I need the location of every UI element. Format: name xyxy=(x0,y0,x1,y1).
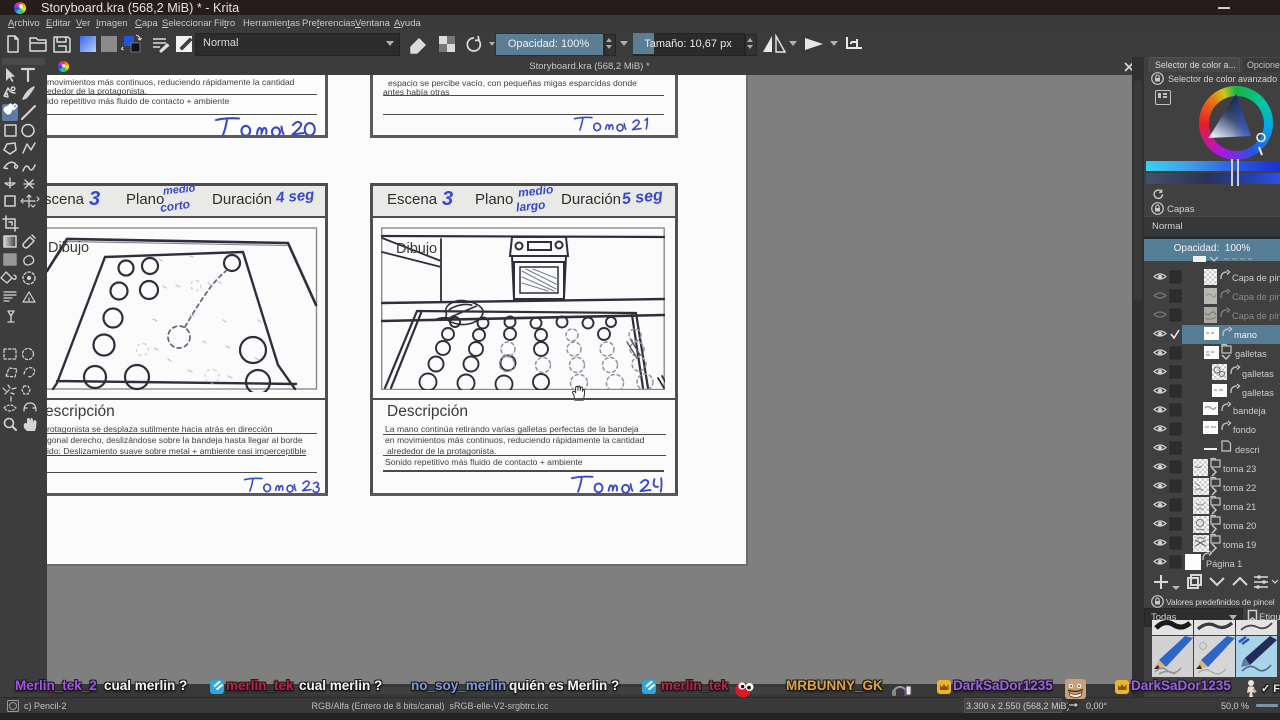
svg-text:Capa de pin...: Capa de pin... xyxy=(1232,292,1280,302)
svg-text:bandeja: bandeja xyxy=(1233,406,1267,416)
svg-text:toma 21: toma 21 xyxy=(1223,502,1256,512)
svg-text:Capa de pin...: Capa de pin... xyxy=(1232,273,1280,283)
svg-text:toma 22: toma 22 xyxy=(1223,483,1256,493)
svg-text:fondo: fondo xyxy=(1233,425,1256,435)
svg-text:toma 20: toma 20 xyxy=(1223,521,1256,531)
svg-text:Dibujo: Dibujo xyxy=(396,241,437,257)
svg-text:toma 23: toma 23 xyxy=(1223,464,1256,474)
svg-text:mano: mano xyxy=(1234,330,1257,340)
svg-text:Capa de pin...: Capa de pin... xyxy=(1232,311,1280,321)
svg-text:galletas: galletas xyxy=(1242,388,1274,398)
svg-text:Página 1: Página 1 xyxy=(1206,559,1242,569)
svg-text:Dibujo: Dibujo xyxy=(48,240,89,256)
svg-text:descri: descri xyxy=(1235,445,1260,455)
svg-text:galletas: galletas xyxy=(1235,349,1267,359)
svg-text:toma 19: toma 19 xyxy=(1223,540,1256,550)
svg-text:galletas: galletas xyxy=(1242,369,1274,379)
